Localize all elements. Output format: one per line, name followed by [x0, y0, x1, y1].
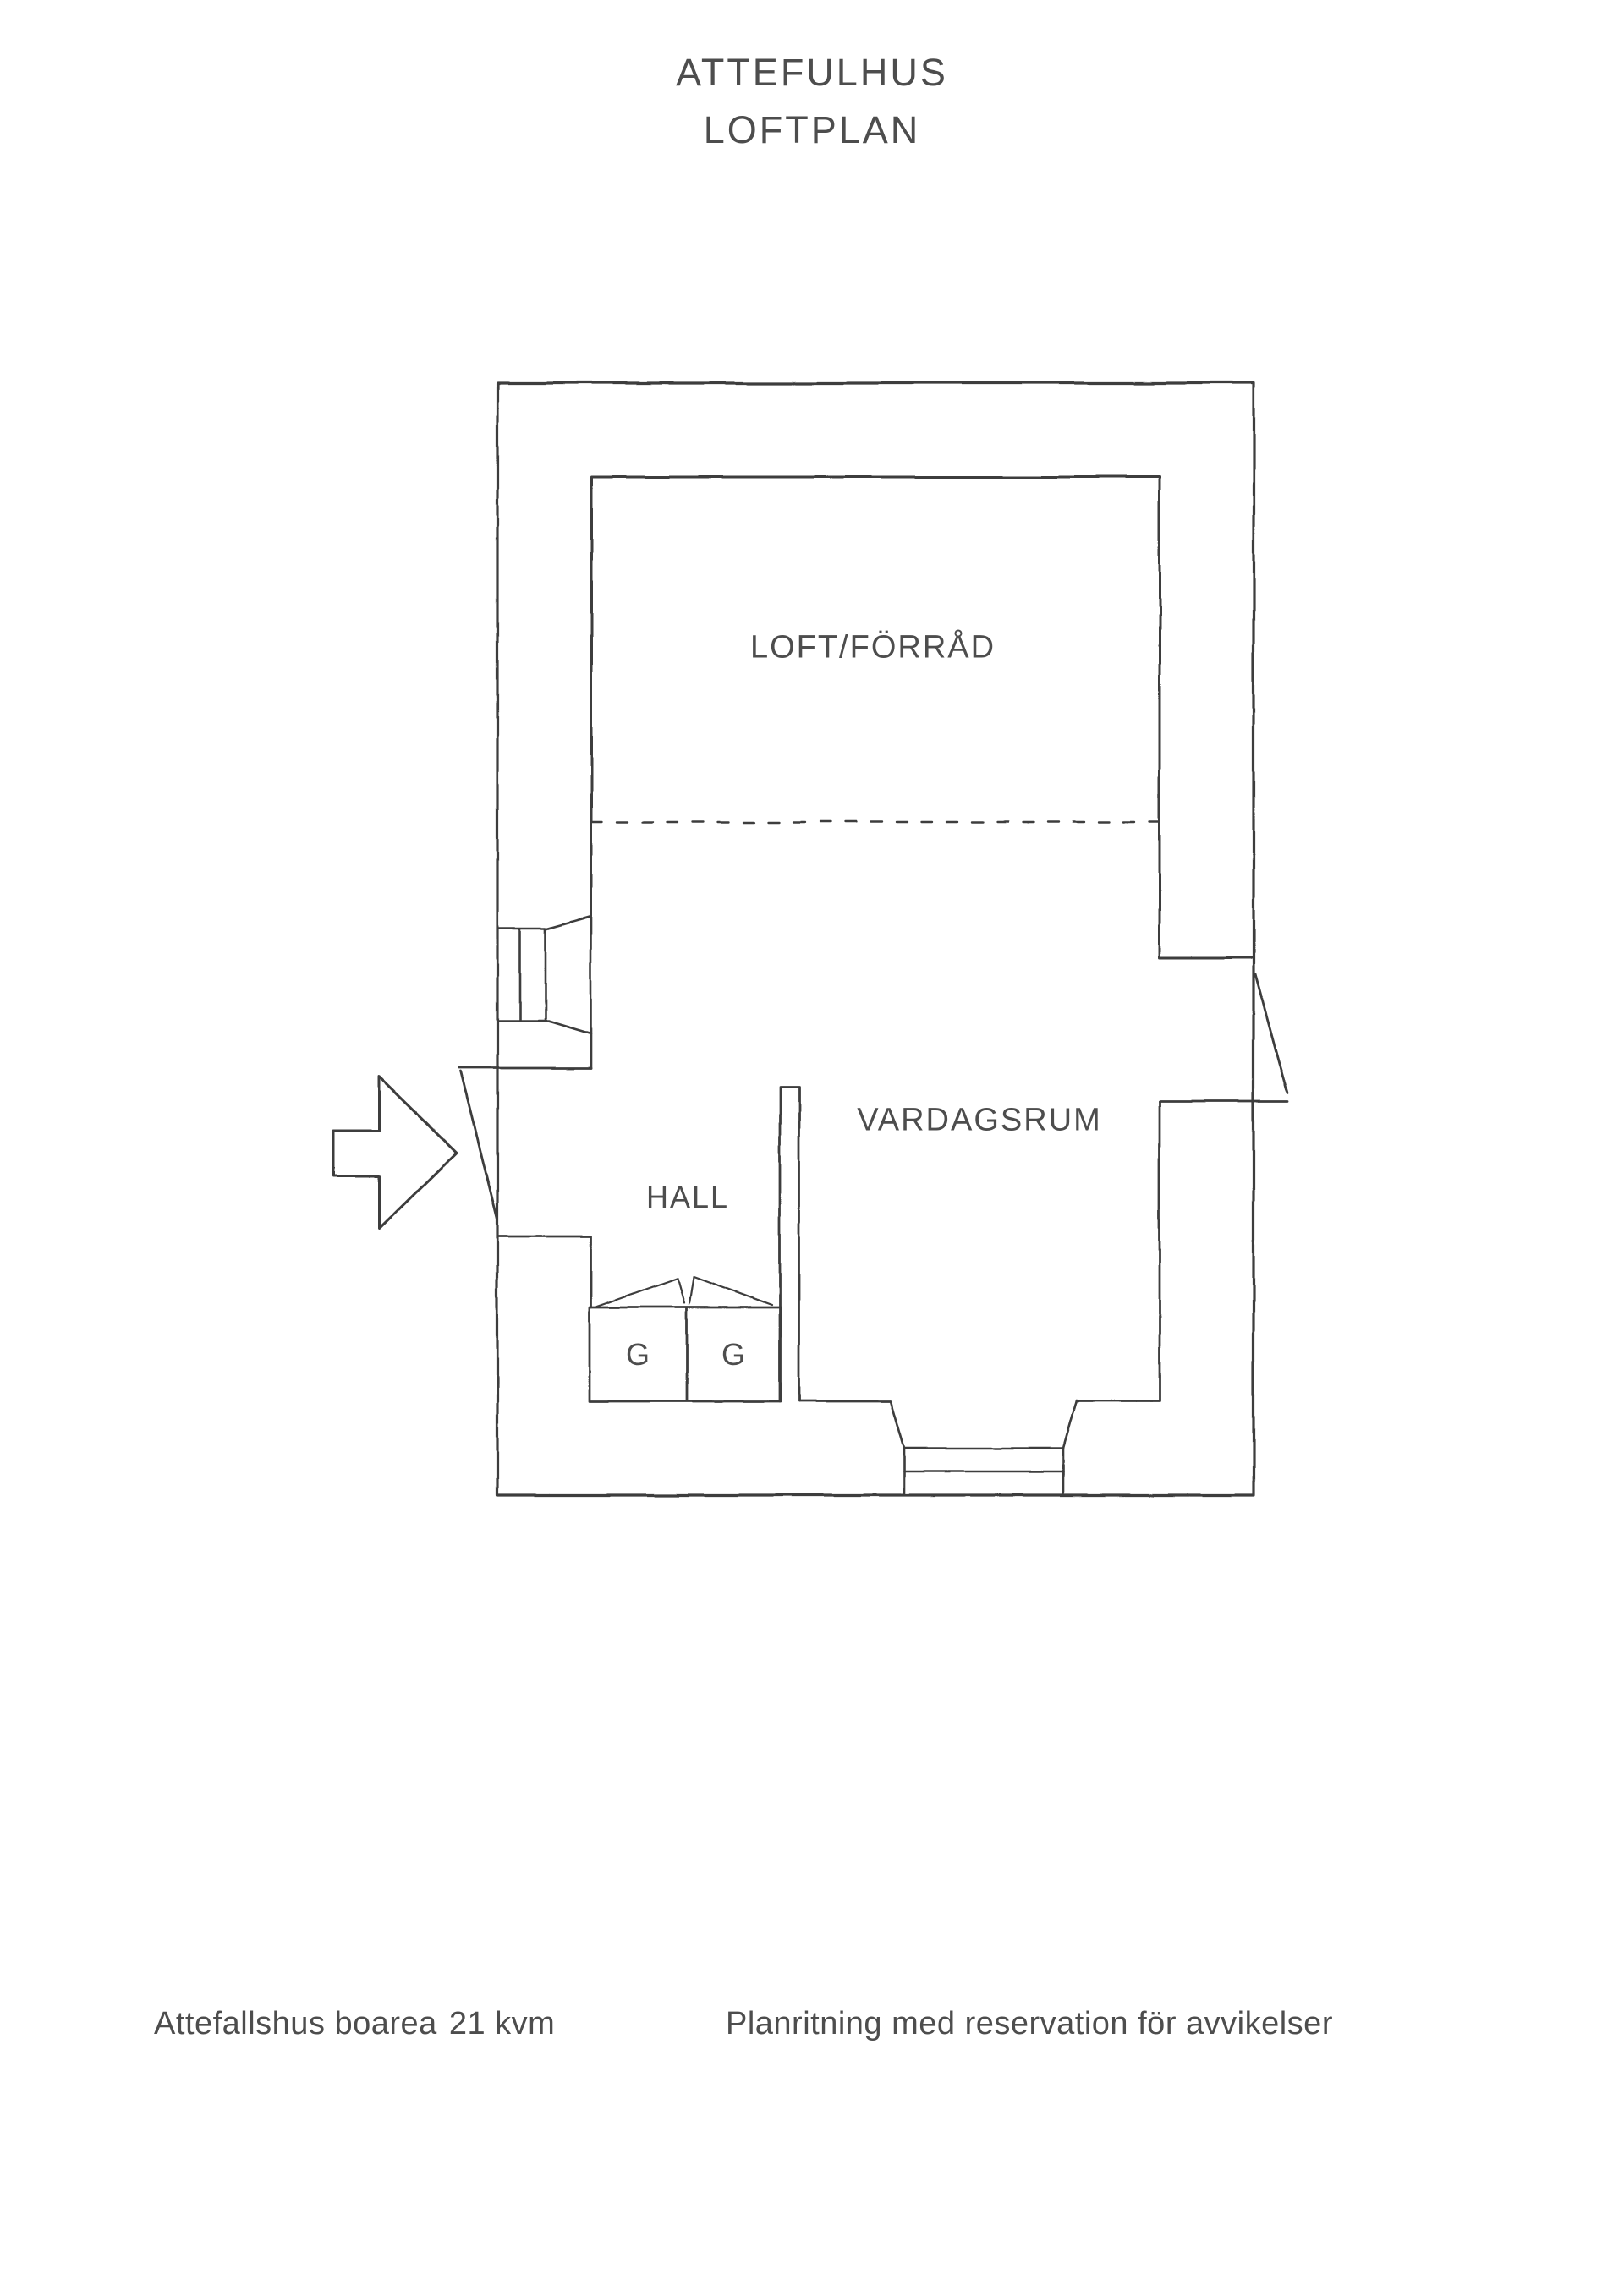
room-label-loft: LOFT/FÖRRÅD	[750, 630, 996, 666]
area-note-value: 21 kvm	[449, 2006, 555, 2041]
entry-arrow-icon	[334, 1077, 457, 1229]
outer-wall-outline	[497, 383, 1254, 1495]
wall-below-entry	[497, 1236, 591, 1307]
loft-inner-walls	[591, 477, 1254, 957]
bottom-stairs	[891, 1400, 1077, 1494]
wardrobe-boxes	[590, 1307, 781, 1401]
right-door-leaf	[1255, 974, 1287, 1093]
area-note: Attefallshus boarea21 kvm	[154, 2006, 555, 2042]
lower-right-inner-wall	[1077, 1102, 1160, 1400]
floor-plan-page: ATTEFULHUS LOFTPLAN	[0, 0, 1624, 2296]
wardrobe-label-left: G	[626, 1337, 651, 1373]
disclaimer-text: Planritning med reservation för avvikels…	[726, 2006, 1333, 2041]
right-door	[1077, 974, 1287, 1400]
wardrobe-door-left	[597, 1279, 684, 1307]
wardrobe-label-right: G	[721, 1337, 747, 1373]
partition-wall	[780, 1087, 799, 1401]
disclaimer-note: Planritning med reservation för avvikels…	[726, 2006, 1333, 2042]
loft-stairs	[497, 917, 591, 1068]
area-note-label: Attefallshus boarea	[154, 2006, 437, 2041]
room-label-hall: HALL	[646, 1180, 729, 1215]
wardrobe-units	[590, 1277, 781, 1401]
entry-door	[459, 1068, 591, 1307]
wardrobe-door-right	[689, 1277, 771, 1305]
room-label-living-room: VARDAGSRUM	[857, 1103, 1102, 1139]
floor-plan-drawing	[0, 0, 1624, 2296]
entry-door-leaf	[461, 1071, 497, 1219]
